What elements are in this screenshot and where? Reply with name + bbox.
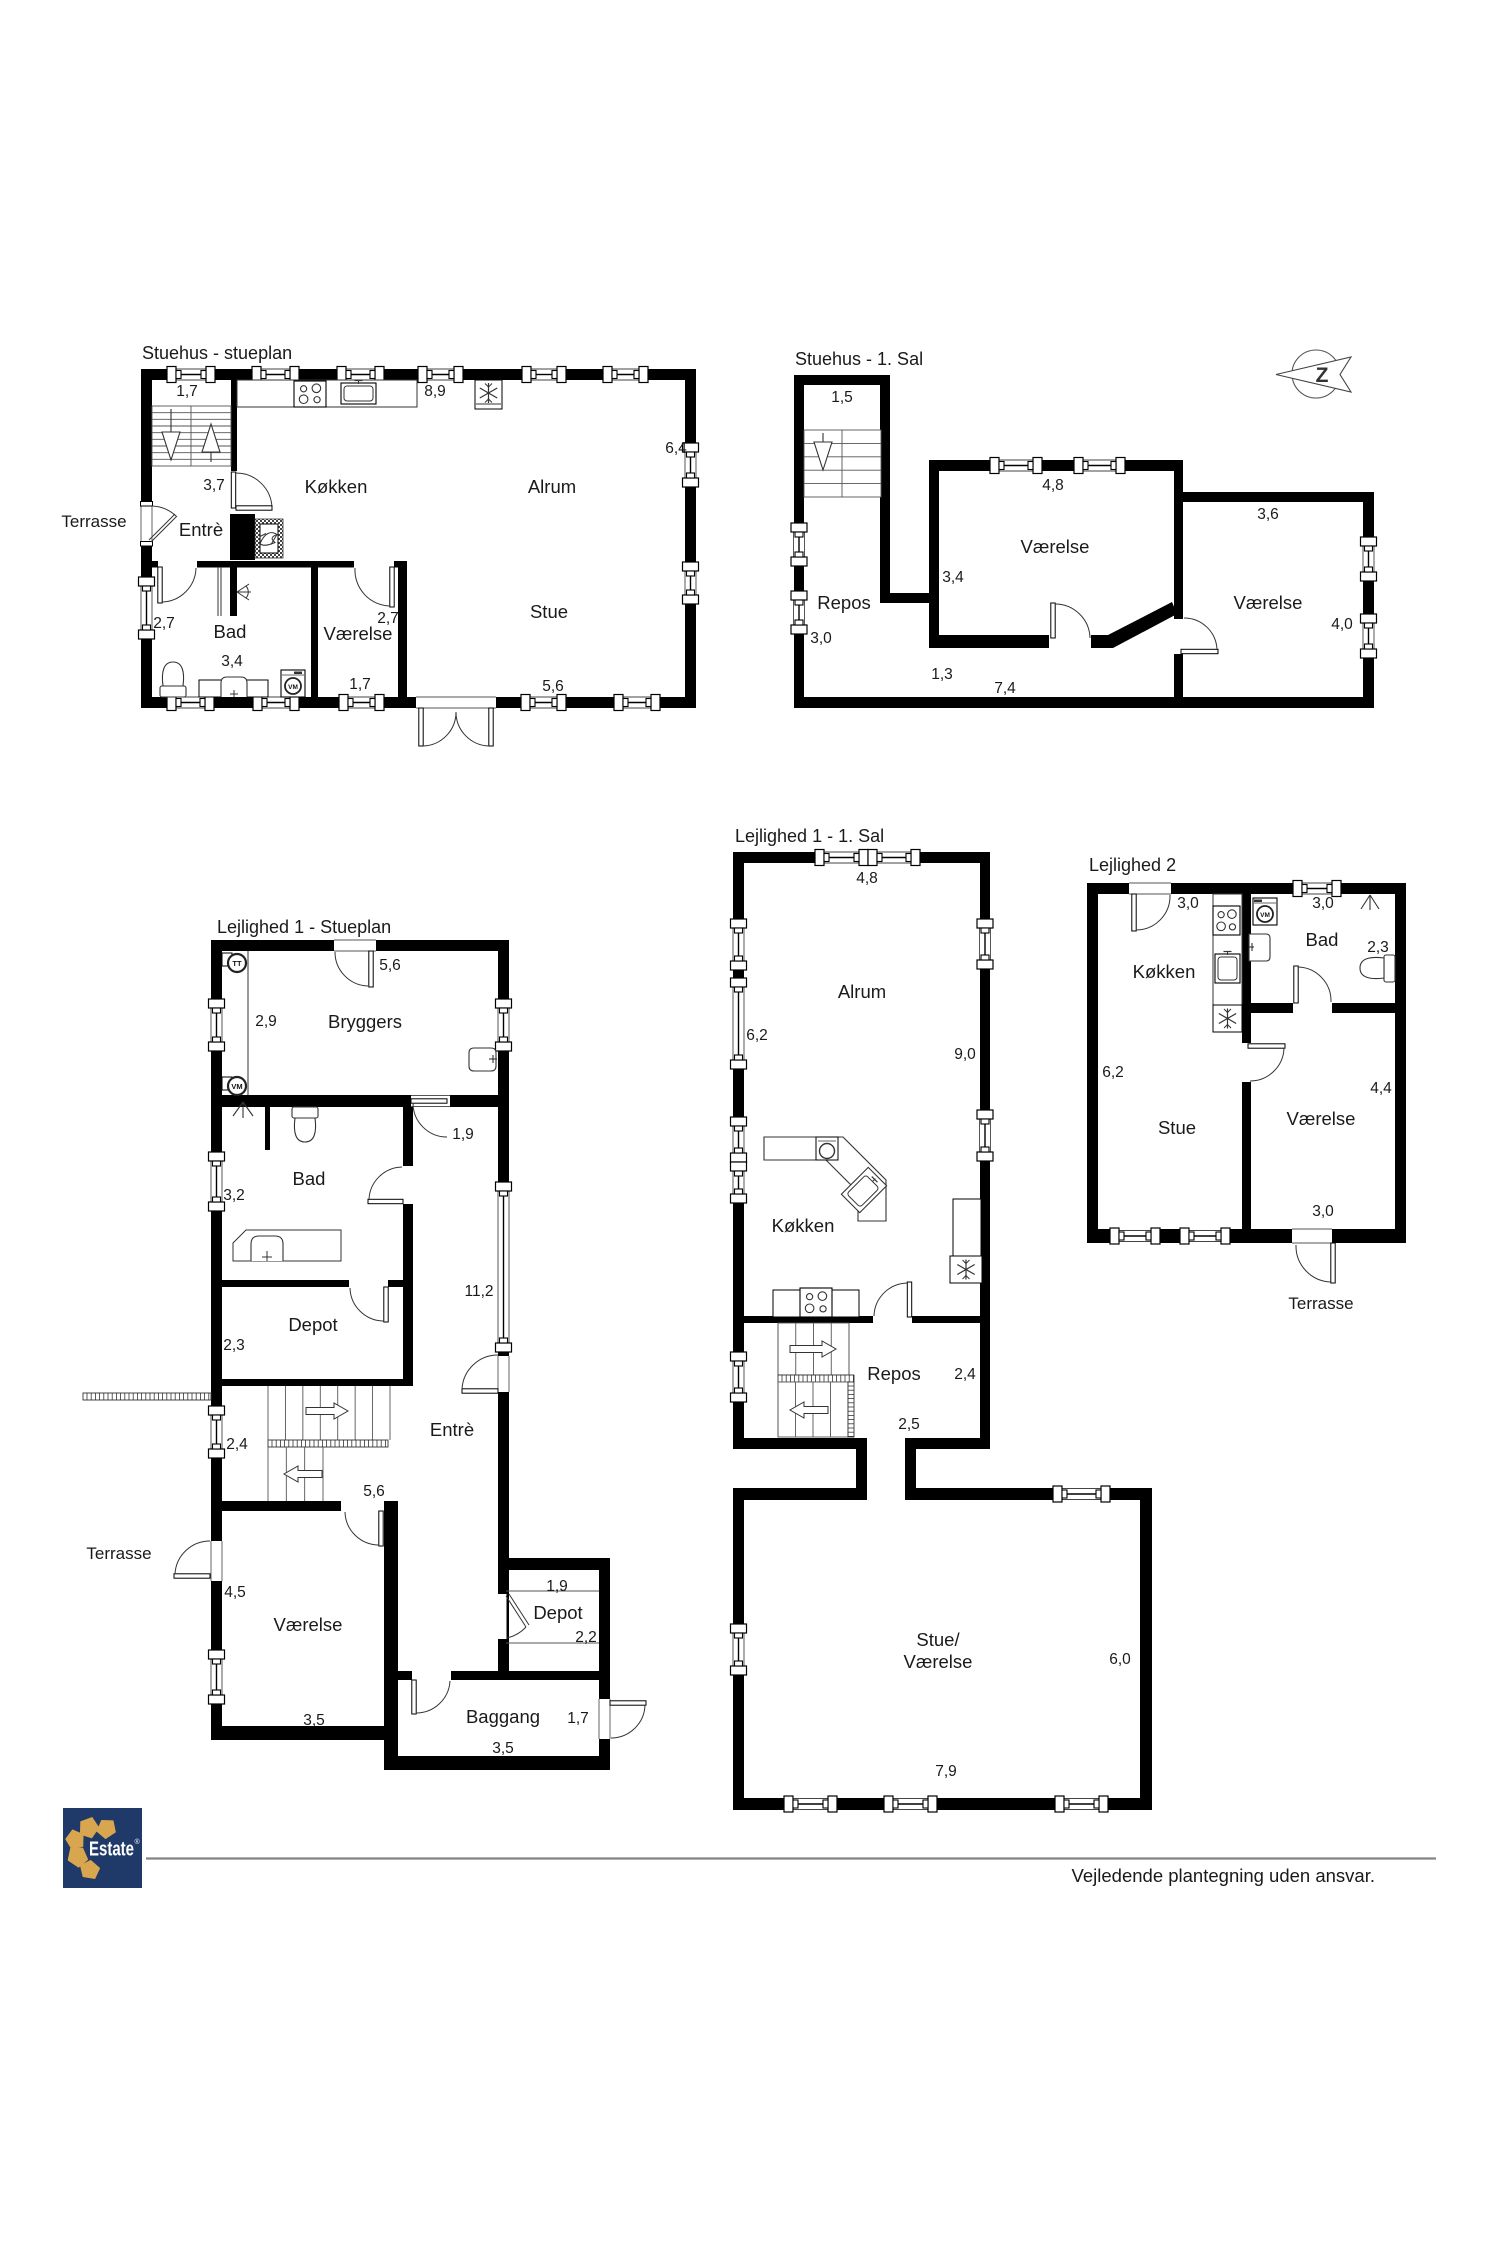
svg-text:Værelse: Værelse (274, 1614, 343, 1635)
svg-text:Stue/: Stue/ (916, 1629, 960, 1650)
svg-text:4,8: 4,8 (1042, 477, 1064, 494)
svg-text:3,0: 3,0 (1177, 895, 1199, 912)
svg-text:Stuehus - 1. Sal: Stuehus - 1. Sal (795, 349, 923, 369)
svg-text:3,6: 3,6 (1257, 506, 1279, 523)
svg-text:Lejlighed 1 - Stueplan: Lejlighed 1 - Stueplan (217, 917, 391, 937)
svg-text:Baggang: Baggang (466, 1706, 540, 1727)
svg-text:Bad: Bad (214, 621, 247, 642)
svg-text:8,9: 8,9 (424, 383, 446, 400)
svg-text:1,7: 1,7 (567, 1710, 589, 1727)
svg-text:3,4: 3,4 (942, 569, 964, 586)
svg-text:2,2: 2,2 (575, 1629, 597, 1646)
svg-text:Værelse: Værelse (1287, 1108, 1356, 1129)
svg-text:2,3: 2,3 (1367, 939, 1389, 956)
svg-text:TT: TT (232, 959, 242, 968)
svg-text:Repos: Repos (867, 1363, 920, 1384)
svg-text:1,9: 1,9 (546, 1578, 568, 1595)
svg-text:6,4: 6,4 (665, 440, 687, 457)
svg-text:4,5: 4,5 (224, 1584, 246, 1601)
svg-text:VM: VM (1260, 912, 1270, 919)
svg-text:1,7: 1,7 (176, 383, 198, 400)
svg-text:3,0: 3,0 (1312, 895, 1334, 912)
svg-text:11,2: 11,2 (464, 1283, 493, 1300)
svg-text:Z: Z (1316, 364, 1329, 387)
svg-text:4,8: 4,8 (856, 870, 878, 887)
svg-text:Køkken: Køkken (772, 1215, 835, 1236)
svg-text:4,0: 4,0 (1331, 616, 1353, 633)
svg-text:Terrasse: Terrasse (86, 1544, 151, 1563)
svg-text:5,6: 5,6 (379, 957, 401, 974)
svg-text:®: ® (135, 1838, 141, 1846)
svg-text:Entrè: Entrè (179, 519, 223, 540)
svg-text:Værelse: Værelse (904, 1651, 973, 1672)
svg-text:3,0: 3,0 (1312, 1203, 1334, 1220)
svg-text:7,9: 7,9 (935, 1763, 957, 1780)
svg-text:Depot: Depot (533, 1602, 582, 1623)
svg-text:3,5: 3,5 (492, 1740, 514, 1757)
svg-text:Estate: Estate (89, 1838, 134, 1861)
svg-text:Stue: Stue (1158, 1117, 1196, 1138)
svg-text:Alrum: Alrum (838, 981, 886, 1002)
svg-text:Entrè: Entrè (430, 1419, 474, 1440)
svg-text:Vejledende plantegning uden an: Vejledende plantegning uden ansvar. (1072, 1865, 1375, 1886)
svg-text:Stuehus - stueplan: Stuehus - stueplan (142, 343, 292, 363)
svg-text:3,5: 3,5 (303, 1712, 325, 1729)
svg-text:9,0: 9,0 (954, 1046, 976, 1063)
svg-text:2,9: 2,9 (255, 1013, 277, 1030)
svg-text:1,9: 1,9 (452, 1126, 474, 1143)
svg-text:Alrum: Alrum (528, 476, 576, 497)
svg-text:5,6: 5,6 (363, 1483, 385, 1500)
svg-text:Bad: Bad (1306, 929, 1339, 950)
svg-text:Depot: Depot (288, 1314, 337, 1335)
svg-text:1,5: 1,5 (831, 389, 853, 406)
svg-text:6,0: 6,0 (1109, 1651, 1131, 1668)
svg-text:2,4: 2,4 (954, 1366, 976, 1383)
svg-text:Værelse: Værelse (1234, 592, 1303, 613)
svg-text:3,0: 3,0 (810, 630, 832, 647)
svg-text:Terrasse: Terrasse (61, 512, 126, 531)
svg-text:Bryggers: Bryggers (328, 1011, 402, 1032)
svg-text:Værelse: Værelse (1021, 536, 1090, 557)
svg-text:2,7: 2,7 (377, 610, 399, 627)
svg-text:Lejlighed 1 - 1. Sal: Lejlighed 1 - 1. Sal (735, 826, 884, 846)
svg-text:6,2: 6,2 (746, 1027, 768, 1044)
svg-text:2,7: 2,7 (153, 615, 175, 632)
svg-text:Terrasse: Terrasse (1288, 1294, 1353, 1313)
svg-text:3,4: 3,4 (221, 653, 243, 670)
svg-text:3,7: 3,7 (203, 477, 225, 494)
svg-text:4,4: 4,4 (1370, 1080, 1392, 1097)
svg-text:1,3: 1,3 (931, 666, 953, 683)
svg-text:Køkken: Køkken (305, 476, 368, 497)
svg-text:Bad: Bad (293, 1168, 326, 1189)
svg-text:6,2: 6,2 (1102, 1064, 1124, 1081)
svg-text:2,3: 2,3 (223, 1337, 245, 1354)
svg-text:7,4: 7,4 (994, 680, 1016, 697)
svg-text:VM: VM (231, 1082, 242, 1091)
svg-text:3,2: 3,2 (223, 1187, 245, 1204)
svg-text:Køkken: Køkken (1133, 961, 1196, 982)
svg-text:5,6: 5,6 (542, 678, 564, 695)
svg-text:2,4: 2,4 (226, 1436, 248, 1453)
svg-text:2,5: 2,5 (898, 1416, 920, 1433)
svg-text:VM: VM (288, 684, 298, 691)
svg-text:Repos: Repos (817, 592, 870, 613)
svg-text:Lejlighed 2: Lejlighed 2 (1089, 855, 1176, 875)
svg-text:Stue: Stue (530, 601, 568, 622)
svg-text:1,7: 1,7 (349, 676, 371, 693)
